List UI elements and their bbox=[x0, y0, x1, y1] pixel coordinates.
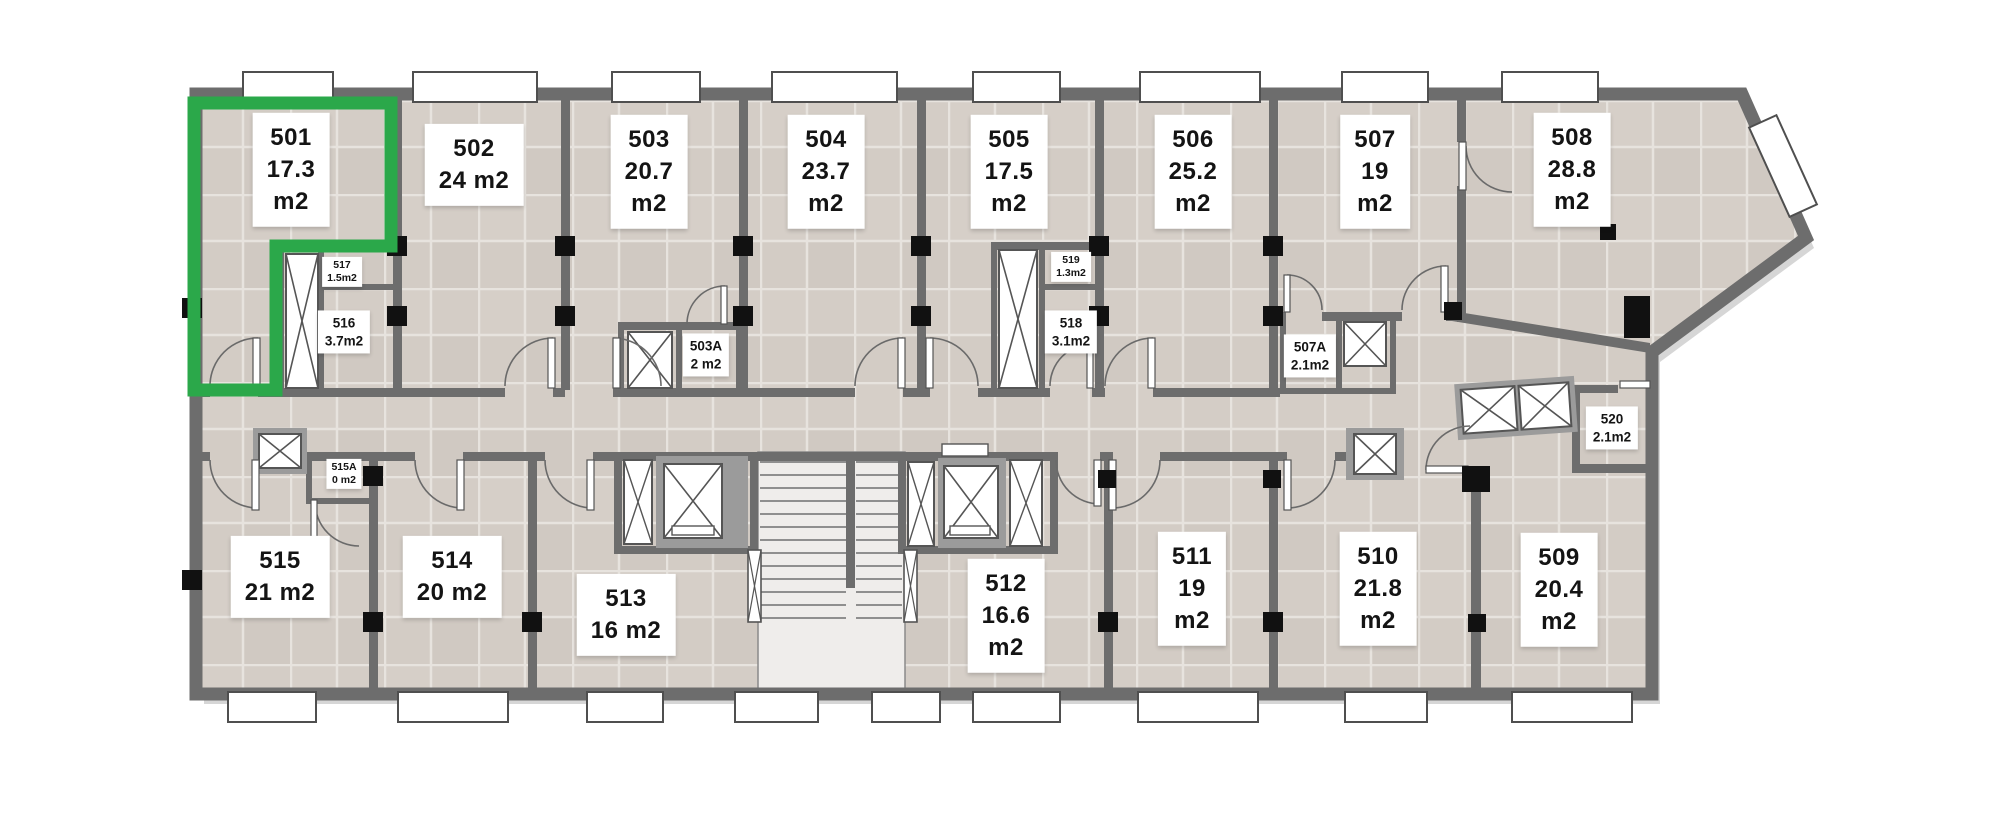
room-label-504[interactable]: 50423.7m2 bbox=[788, 115, 865, 229]
duct-x-icon bbox=[286, 254, 318, 388]
room-label-503[interactable]: 50320.7m2 bbox=[611, 115, 688, 229]
room-label-514[interactable]: 51420 m2 bbox=[403, 536, 502, 618]
duct-x-icon bbox=[1346, 428, 1404, 480]
room-label-517[interactable]: 5171.5m2 bbox=[322, 257, 362, 287]
duct-x-icon bbox=[904, 550, 917, 622]
room-label-511[interactable]: 51119m2 bbox=[1158, 532, 1226, 646]
room-label-507[interactable]: 50719m2 bbox=[1340, 115, 1410, 229]
elevator-shaft-icon bbox=[1454, 376, 1578, 440]
room-label-508[interactable]: 50828.8m2 bbox=[1534, 113, 1611, 227]
room-label-503A[interactable]: 503A2 m2 bbox=[683, 333, 729, 376]
duct-x-icon bbox=[748, 550, 761, 622]
floor-plan-canvas: 50117.3m2 50224 m2 50320.7m2 50423.7m2 5… bbox=[0, 0, 2000, 837]
room-label-506[interactable]: 50625.2m2 bbox=[1155, 115, 1232, 229]
room-label-501[interactable]: 50117.3m2 bbox=[253, 113, 330, 227]
elevator-shaft-icon bbox=[624, 456, 748, 548]
room-label-510[interactable]: 51021.8m2 bbox=[1340, 532, 1417, 646]
room-label-515[interactable]: 51521 m2 bbox=[231, 536, 330, 618]
stairs-icon bbox=[758, 452, 905, 694]
duct-x-icon bbox=[999, 250, 1037, 388]
room-label-512[interactable]: 51216.6m2 bbox=[968, 559, 1045, 673]
room-label-505[interactable]: 50517.5m2 bbox=[971, 115, 1048, 229]
room-label-519[interactable]: 5191.3m2 bbox=[1051, 252, 1091, 282]
room-label-515A[interactable]: 515A0 m2 bbox=[326, 459, 361, 489]
room-label-502[interactable]: 50224 m2 bbox=[425, 124, 524, 206]
duct-x-icon bbox=[1344, 322, 1386, 366]
room-label-507A[interactable]: 507A2.1m2 bbox=[1284, 334, 1336, 377]
room-label-516[interactable]: 5163.7m2 bbox=[318, 310, 370, 353]
duct-x-icon bbox=[628, 332, 672, 388]
room-label-513[interactable]: 51316 m2 bbox=[577, 574, 676, 656]
room-label-520[interactable]: 5202.1m2 bbox=[1586, 406, 1638, 449]
duct-x-icon bbox=[253, 428, 307, 474]
room-label-518[interactable]: 5183.1m2 bbox=[1045, 310, 1097, 353]
room-label-509[interactable]: 50920.4m2 bbox=[1521, 533, 1598, 647]
